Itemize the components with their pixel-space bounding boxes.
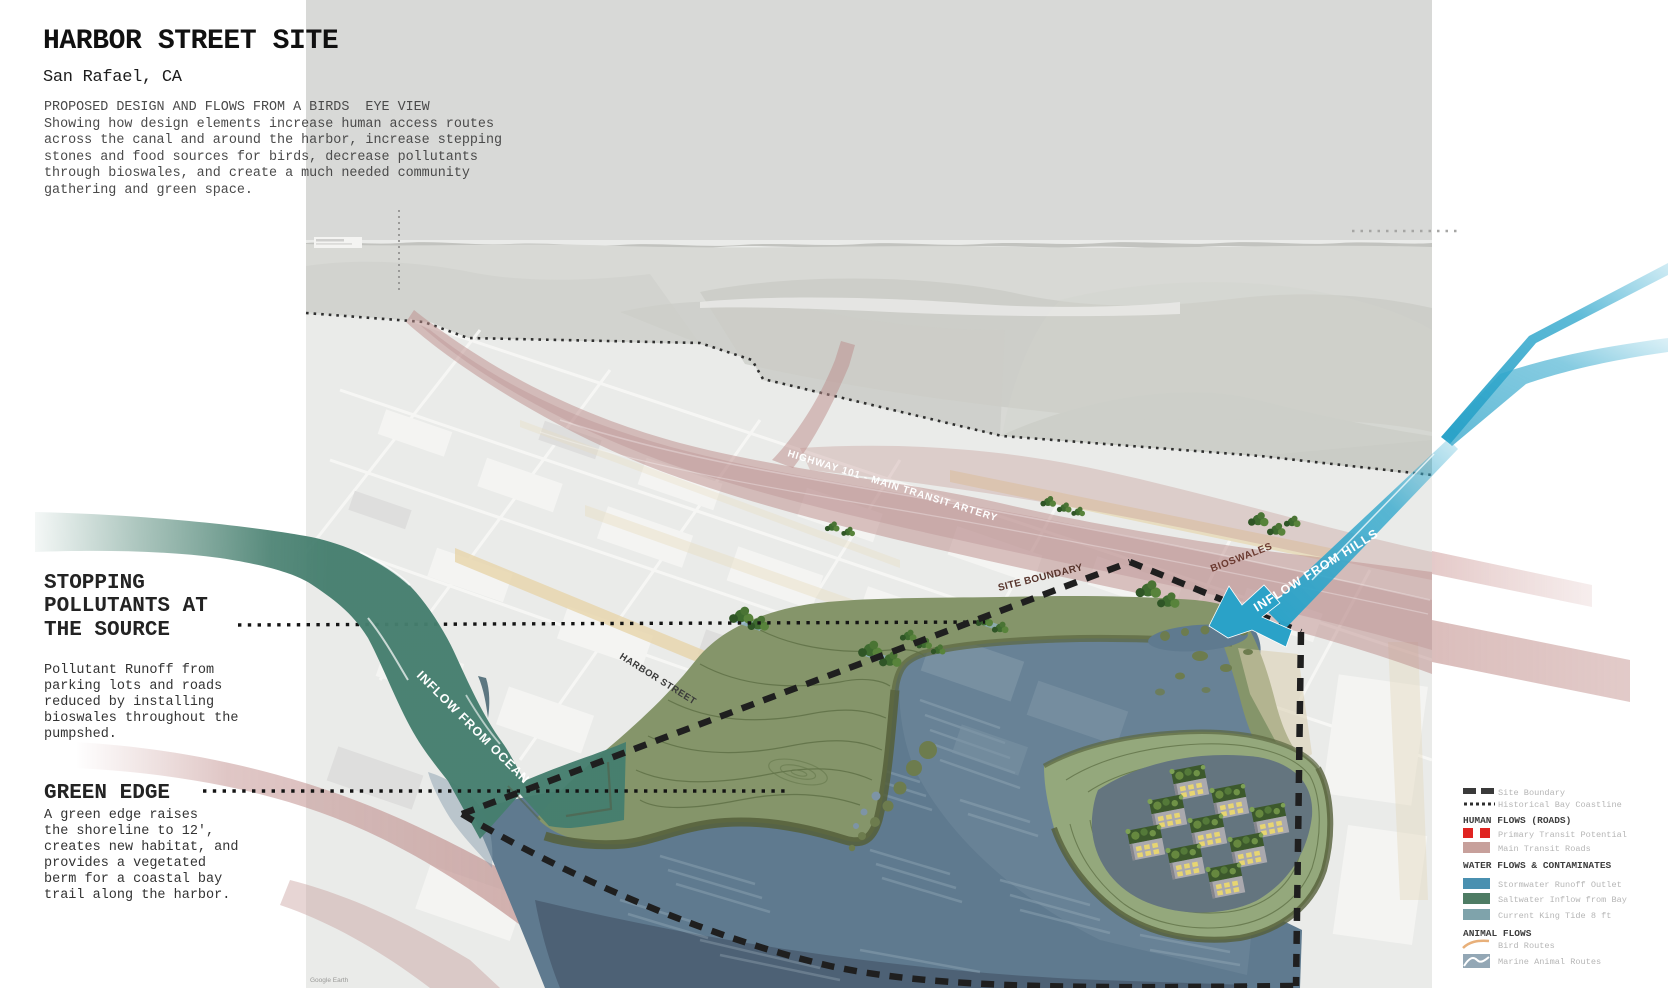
svg-text:Primary Transit Potential: Primary Transit Potential bbox=[1498, 830, 1627, 840]
svg-text:Stormwater Runoff Outlet: Stormwater Runoff Outlet bbox=[1498, 880, 1622, 890]
svg-text:HUMAN FLOWS (ROADS): HUMAN FLOWS (ROADS) bbox=[1463, 815, 1571, 826]
svg-text:WATER FLOWS & CONTAMINATES: WATER FLOWS & CONTAMINATES bbox=[1463, 860, 1612, 871]
svg-text:Main Transit Roads: Main Transit Roads bbox=[1498, 844, 1591, 854]
svg-text:Current King Tide 8 ft: Current King Tide 8 ft bbox=[1498, 911, 1611, 921]
svg-text:ANIMAL FLOWS: ANIMAL FLOWS bbox=[1463, 928, 1532, 939]
svg-text:Site Boundary: Site Boundary bbox=[1498, 788, 1565, 798]
svg-text:Bird Routes: Bird Routes bbox=[1498, 941, 1555, 951]
svg-text:Historical Bay Coastline: Historical Bay Coastline bbox=[1498, 800, 1622, 810]
svg-text:Google Earth: Google Earth bbox=[310, 977, 349, 984]
svg-text:Marine Animal Routes: Marine Animal Routes bbox=[1498, 957, 1601, 967]
svg-text:Saltwater Inflow from Bay: Saltwater Inflow from Bay bbox=[1498, 895, 1627, 905]
